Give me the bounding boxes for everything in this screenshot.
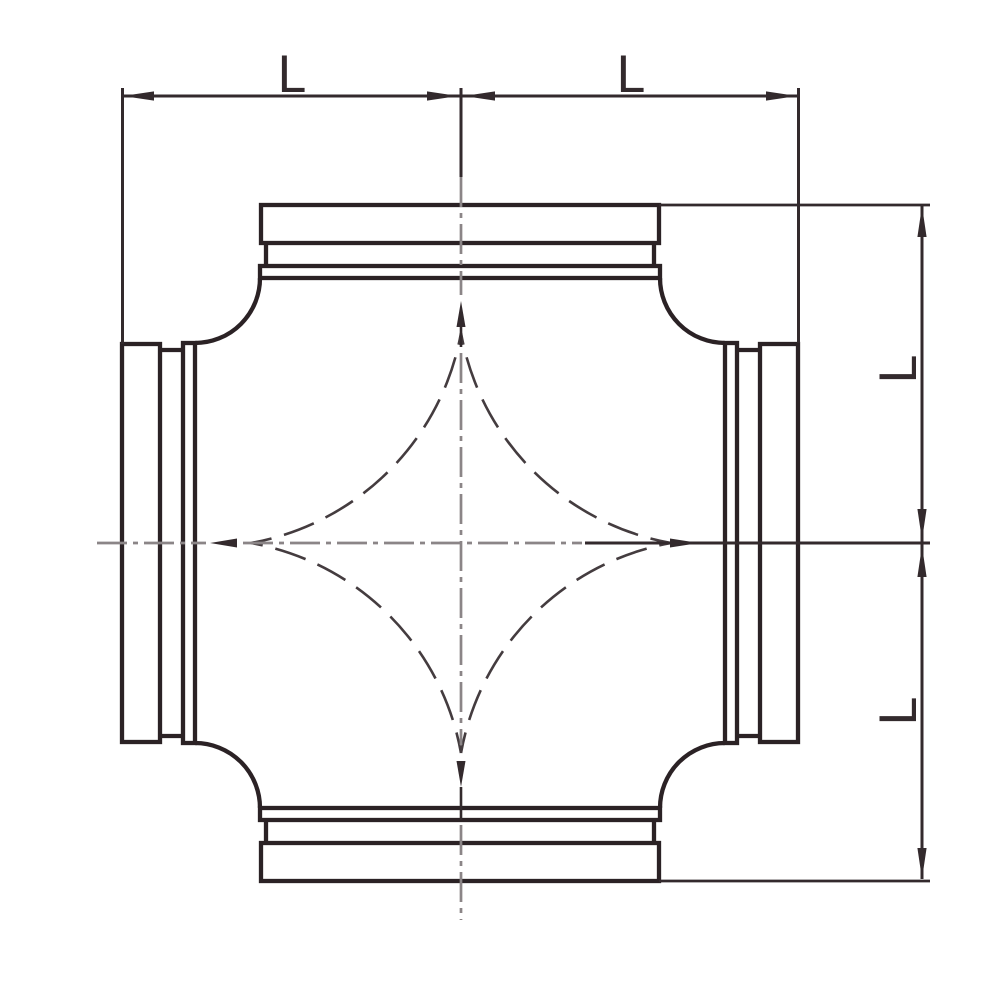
fillet-bottom-right [660, 743, 725, 808]
cusp-arrow-right [670, 539, 699, 548]
dim-label-right-upper: L [870, 356, 928, 384]
bore-arc-top-right [461, 333, 671, 543]
dim-arrow-top-far-right [766, 91, 797, 100]
technical-drawing-canvas: L L L L [0, 0, 1000, 1000]
fillet-top-left [195, 278, 260, 343]
cross-fitting-drawing: L L L L [0, 0, 1000, 1000]
dim-arrow-right-upper-mid [917, 509, 926, 540]
bore-arc-bottom-left [251, 543, 461, 753]
dimension-layer: L L L L [123, 46, 931, 881]
dim-label-top-right: L [616, 46, 644, 104]
dim-arrow-top-far-left [123, 91, 154, 100]
bore-arc-bottom-right [461, 543, 671, 753]
dim-arrow-top-center-right [464, 91, 495, 100]
cusp-arrow-left [210, 539, 237, 548]
dim-label-top-left: L [277, 46, 305, 104]
cusp-arrow-down [457, 761, 466, 787]
fillet-top-right [660, 278, 725, 343]
fillet-bottom-left [195, 743, 260, 808]
dim-arrow-right-top [917, 206, 926, 237]
dim-arrow-top-center-left [427, 91, 458, 100]
dim-label-right-lower: L [870, 698, 928, 726]
dim-arrow-right-lower-mid [917, 546, 926, 577]
bore-arc-top-left [251, 333, 461, 543]
cusp-arrow-up [457, 301, 466, 327]
dim-arrow-right-bottom [917, 848, 926, 879]
